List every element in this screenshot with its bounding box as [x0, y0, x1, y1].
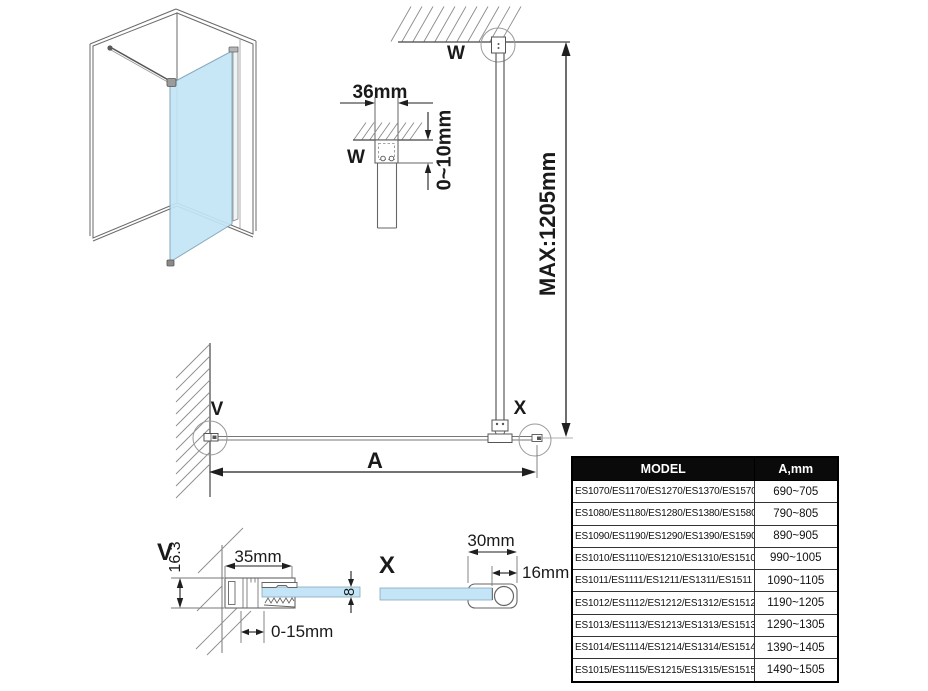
technical-drawing-page: W X V — [0, 0, 928, 686]
model-cell: ES1011/ES1111/ES1211/ES1311/ES1511 — [572, 570, 754, 592]
dim-35mm-label: 35mm — [234, 547, 281, 566]
model-cell: ES1090/ES1190/ES1290/ES1390/ES1590 — [572, 525, 754, 547]
table-row: ES1090/ES1190/ES1290/ES1390/ES1590890~90… — [572, 525, 838, 547]
model-cell: ES1080/ES1180/ES1280/ES1380/ES1580 — [572, 503, 754, 525]
table-row: ES1070/ES1170/ES1270/ES1370/ES1570690~70… — [572, 481, 838, 503]
iso-top-bracket — [229, 47, 238, 52]
dim-36mm-label: 36mm — [353, 82, 408, 103]
support-bar-section — [495, 587, 514, 606]
bar-lower-clamp — [492, 420, 508, 431]
model-cell: ES1013/ES1113/ES1213/ES1313/ES1513 — [572, 614, 754, 636]
iso-glass-panel — [170, 51, 232, 262]
ceiling-hatch — [391, 7, 521, 42]
model-cell: ES1012/ES1112/ES1212/ES1312/ES1512 — [572, 592, 754, 614]
table-header-a: A,mm — [754, 457, 838, 481]
model-cell: ES1015/ES1115/ES1215/ES1315/ES1515 — [572, 659, 754, 682]
dim-30mm-label: 30mm — [467, 531, 514, 550]
bar-glass-clamp-plan — [488, 434, 512, 443]
table-row: ES1080/ES1180/ES1280/ES1380/ES1580790~80… — [572, 503, 838, 525]
a-range-cell: 890~905 — [754, 525, 838, 547]
detail-v: V 16.3 35mm 8 — [157, 528, 360, 655]
dim-a-label: A — [367, 448, 383, 473]
table-row: ES1011/ES1111/ES1211/ES1311/ES15111090~1… — [572, 570, 838, 592]
model-table: MODEL A,mm ES1070/ES1170/ES1270/ES1370/E… — [571, 456, 837, 683]
a-range-cell: 1290~1305 — [754, 614, 838, 636]
model-cell: ES1010/ES1110/ES1210/ES1310/ES1510 — [572, 547, 754, 569]
dim-0-15mm-label: 0-15mm — [271, 622, 333, 641]
dim-16-3-label: 16.3 — [167, 541, 184, 572]
table-header-model: MODEL — [572, 457, 754, 481]
label-v-plan: V — [211, 399, 224, 420]
dim-0-10mm-label: 0~10mm — [433, 110, 455, 191]
label-x-plan: X — [514, 398, 527, 419]
detail-w: 36mm 0~10mm W — [340, 82, 455, 228]
label-w-plan: W — [447, 43, 465, 64]
iso-bar-glass-clamp — [167, 79, 176, 87]
iso-bar-wall-mount — [107, 45, 112, 50]
a-range-cell: 1390~1405 — [754, 636, 838, 658]
detail-w-hatch — [354, 123, 422, 140]
iso-view — [90, 9, 256, 266]
table-row: ES1010/ES1110/ES1210/ES1310/ES1510990~10… — [572, 547, 838, 569]
label-w-detail: W — [347, 147, 365, 168]
model-cell: ES1070/ES1170/ES1270/ES1370/ES1570 — [572, 481, 754, 503]
iso-left-wall — [93, 13, 177, 238]
table-row: ES1013/ES1113/ES1213/ES1313/ES15131290~1… — [572, 614, 838, 636]
a-range-cell: 1090~1105 — [754, 570, 838, 592]
dim-max-label: MAX:1205mm — [535, 152, 560, 296]
table-row: ES1015/ES1115/ES1215/ES1315/ES15151490~1… — [572, 659, 838, 682]
wall-hatch — [176, 344, 210, 498]
iso-wall-profile — [233, 47, 238, 221]
table-header-row: MODEL A,mm — [572, 457, 838, 481]
a-range-cell: 990~1005 — [754, 547, 838, 569]
a-range-cell: 790~805 — [754, 503, 838, 525]
table-row: ES1012/ES1112/ES1212/ES1312/ES15121190~1… — [572, 592, 838, 614]
table-row: ES1014/ES1114/ES1214/ES1314/ES15141390~1… — [572, 636, 838, 658]
iso-glass-foot — [167, 260, 174, 266]
dim-16mm-label: 16mm — [522, 563, 569, 582]
label-x-detail: X — [379, 552, 395, 579]
a-range-cell: 1490~1505 — [754, 659, 838, 682]
dim-8-label: 8 — [341, 588, 358, 596]
detail-x: X 30mm 16mm — [379, 531, 569, 608]
detail-x-glass — [380, 588, 492, 600]
a-range-cell: 690~705 — [754, 481, 838, 503]
a-range-cell: 1190~1205 — [754, 592, 838, 614]
model-cell: ES1014/ES1114/ES1214/ES1314/ES1514 — [572, 636, 754, 658]
